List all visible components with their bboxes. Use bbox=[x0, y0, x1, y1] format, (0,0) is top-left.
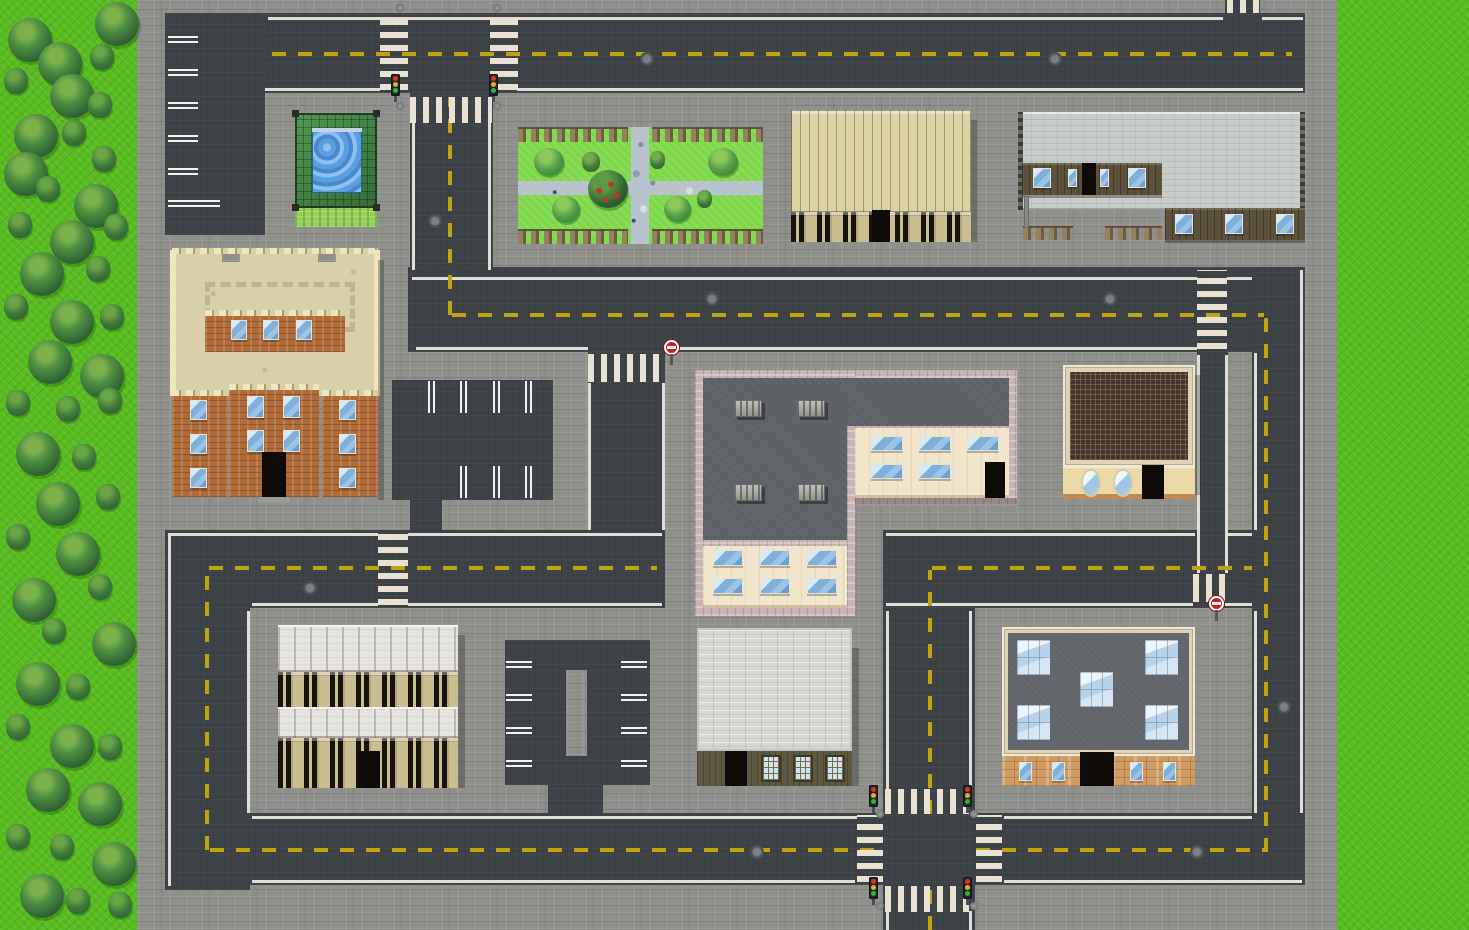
tree bbox=[6, 524, 30, 550]
signal-post bbox=[970, 902, 978, 910]
road-edge bbox=[662, 383, 665, 530]
window bbox=[339, 400, 356, 420]
garden-path-horizontal bbox=[518, 181, 763, 195]
parking-stripe bbox=[525, 466, 532, 498]
house-door bbox=[1142, 465, 1164, 499]
tree bbox=[4, 68, 28, 94]
parking-stripe bbox=[168, 135, 198, 142]
parking-stripe bbox=[621, 727, 647, 734]
tree bbox=[95, 2, 139, 46]
manhole bbox=[1048, 52, 1062, 66]
window bbox=[1052, 762, 1065, 781]
skylight bbox=[1145, 705, 1178, 740]
lane-dash bbox=[452, 313, 1264, 317]
road-edge bbox=[588, 383, 591, 530]
parking-stripe bbox=[428, 381, 435, 413]
signal-post bbox=[970, 810, 978, 818]
road-connector-east bbox=[1197, 352, 1228, 578]
tree bbox=[92, 622, 136, 666]
crosswalk bbox=[378, 532, 408, 605]
yard-fence bbox=[1023, 226, 1073, 240]
window bbox=[760, 550, 790, 566]
garden-fence bbox=[518, 229, 628, 244]
window bbox=[760, 578, 790, 594]
grass-strip-right bbox=[1337, 0, 1469, 930]
tree bbox=[104, 214, 128, 240]
tree bbox=[16, 432, 60, 476]
pool-post bbox=[292, 204, 299, 211]
tree bbox=[78, 782, 122, 826]
tree bbox=[86, 256, 110, 282]
garden-apple-bush bbox=[588, 170, 628, 208]
town-map-viewport[interactable] bbox=[0, 0, 1469, 930]
road-edge bbox=[886, 603, 1193, 606]
parking-stripe bbox=[621, 661, 647, 668]
yard-fence bbox=[1105, 226, 1162, 240]
manhole bbox=[1103, 292, 1117, 306]
lane-dash bbox=[272, 52, 1292, 56]
traffic-light bbox=[963, 877, 972, 899]
parking-stripe bbox=[460, 466, 467, 498]
garden-fence bbox=[652, 229, 763, 244]
window bbox=[283, 430, 300, 452]
tree bbox=[88, 92, 112, 118]
tree bbox=[6, 714, 30, 740]
building-shadow bbox=[378, 260, 384, 500]
crosswalk bbox=[976, 815, 1002, 882]
lane-dash bbox=[448, 97, 452, 315]
tree bbox=[108, 892, 132, 918]
roof-trim bbox=[1018, 112, 1023, 210]
garden-fence bbox=[518, 127, 628, 142]
window bbox=[283, 396, 300, 418]
road-edge bbox=[886, 611, 889, 790]
road-edge bbox=[265, 88, 380, 91]
tree bbox=[92, 146, 116, 172]
window bbox=[339, 434, 356, 454]
parking-stripe bbox=[506, 760, 532, 767]
manhole bbox=[303, 581, 317, 595]
parking-exit-lane bbox=[548, 785, 603, 813]
road-edge bbox=[1004, 816, 1252, 819]
road-edge bbox=[1254, 611, 1257, 813]
traffic-light bbox=[391, 74, 400, 96]
depot-door bbox=[1080, 752, 1114, 786]
tree bbox=[28, 340, 72, 384]
manhole bbox=[1277, 700, 1291, 714]
tree bbox=[98, 388, 122, 414]
tree bbox=[50, 834, 74, 860]
skylight bbox=[1145, 640, 1178, 675]
road-edge bbox=[886, 533, 1195, 536]
roof-vent bbox=[797, 400, 825, 417]
tree bbox=[50, 300, 94, 344]
parking-stripe bbox=[506, 661, 532, 668]
hotel-crenel bbox=[172, 248, 378, 254]
window bbox=[296, 320, 312, 340]
parking-stripe bbox=[168, 168, 198, 175]
tree bbox=[90, 44, 114, 70]
house-roof bbox=[1070, 372, 1188, 460]
tree bbox=[98, 734, 122, 760]
crosswalk bbox=[1227, 0, 1259, 13]
window bbox=[263, 320, 279, 340]
road-edge bbox=[168, 536, 171, 886]
tree bbox=[96, 484, 120, 510]
traffic-light bbox=[869, 785, 878, 807]
tree bbox=[50, 724, 94, 768]
window bbox=[1175, 214, 1193, 234]
window bbox=[967, 436, 999, 451]
gray-warehouse-roof bbox=[1018, 112, 1305, 210]
parking-stripe bbox=[621, 694, 647, 701]
window bbox=[247, 430, 264, 452]
road-edge bbox=[1225, 603, 1252, 606]
tree bbox=[88, 574, 112, 600]
road-edge bbox=[247, 611, 250, 813]
hotel-crenel bbox=[172, 390, 228, 396]
parking-island bbox=[566, 670, 587, 756]
tree bbox=[12, 578, 56, 622]
signal-post bbox=[876, 810, 884, 818]
parking-stripe bbox=[525, 381, 532, 413]
garden-fence bbox=[652, 127, 763, 142]
tree bbox=[26, 768, 70, 812]
tree bbox=[50, 74, 94, 118]
garden-bush bbox=[582, 152, 600, 172]
manhole bbox=[1190, 845, 1204, 859]
stop-sign bbox=[664, 340, 679, 355]
window bbox=[1276, 214, 1294, 234]
pool-post bbox=[292, 110, 299, 117]
warehouse-roof bbox=[791, 110, 971, 212]
road-vertical-east bbox=[1252, 267, 1305, 885]
window bbox=[231, 320, 247, 340]
building-shadow bbox=[458, 635, 465, 788]
window bbox=[871, 464, 903, 479]
window bbox=[713, 550, 743, 566]
roof-vent bbox=[734, 484, 762, 501]
skylight bbox=[1080, 672, 1113, 707]
parking-stripe bbox=[460, 381, 467, 413]
tree bbox=[72, 444, 96, 470]
crosswalk bbox=[410, 97, 492, 123]
traffic-light bbox=[869, 877, 878, 899]
hotel-crenel bbox=[322, 390, 378, 396]
parking-stripe bbox=[168, 36, 198, 43]
traffic-light bbox=[963, 785, 972, 807]
window bbox=[795, 757, 811, 780]
road-edge bbox=[665, 347, 1197, 350]
tree bbox=[4, 294, 28, 320]
lane-dash bbox=[928, 570, 932, 814]
crosswalk bbox=[885, 886, 973, 912]
road-edge bbox=[1004, 880, 1302, 883]
window bbox=[190, 468, 207, 488]
road-edge bbox=[268, 17, 1223, 20]
road-edge bbox=[168, 533, 378, 536]
road-edge bbox=[1262, 17, 1303, 20]
crosswalk bbox=[885, 789, 973, 814]
gray-warehouse-door bbox=[1082, 163, 1096, 195]
window bbox=[763, 757, 779, 780]
lane-dash bbox=[932, 566, 1252, 570]
apartments-door bbox=[359, 751, 380, 788]
road-edge bbox=[886, 911, 889, 930]
window bbox=[1128, 168, 1146, 188]
roof-vent bbox=[797, 484, 825, 501]
apartments-facade-upper bbox=[278, 672, 458, 707]
road-edge bbox=[1227, 533, 1252, 536]
skylight bbox=[1017, 705, 1050, 740]
oval-window bbox=[1115, 471, 1131, 495]
crosswalk bbox=[857, 815, 883, 882]
parking-stripe bbox=[168, 102, 198, 109]
road-edge bbox=[1227, 277, 1252, 280]
window bbox=[1100, 169, 1109, 187]
traffic-light bbox=[489, 74, 498, 96]
office-roof bbox=[703, 378, 847, 540]
building-shadow bbox=[1195, 375, 1201, 495]
road-edge bbox=[969, 611, 972, 790]
tree bbox=[100, 304, 124, 330]
signal-post bbox=[876, 902, 884, 910]
road-edge bbox=[408, 603, 662, 606]
workshop-door bbox=[725, 751, 747, 786]
oval-window bbox=[1083, 471, 1099, 495]
building-shadow bbox=[855, 498, 1017, 506]
pool-hedge bbox=[295, 208, 377, 227]
parking-stripe bbox=[168, 200, 220, 207]
lane-dash bbox=[210, 848, 882, 852]
window bbox=[1130, 762, 1143, 781]
parking-exit-lane bbox=[410, 500, 442, 533]
road-edge bbox=[1225, 355, 1228, 573]
window bbox=[713, 578, 743, 594]
window bbox=[827, 757, 843, 780]
tree bbox=[16, 662, 60, 706]
road-edge bbox=[252, 816, 857, 819]
road-edge bbox=[408, 533, 662, 536]
lane-dash bbox=[209, 566, 657, 570]
pool-post bbox=[373, 204, 380, 211]
garden-tree bbox=[664, 196, 691, 222]
road-edge bbox=[488, 122, 491, 270]
signal-post bbox=[396, 4, 404, 12]
office-door bbox=[985, 462, 1005, 498]
road-edge bbox=[517, 88, 1303, 91]
road-edge bbox=[412, 122, 415, 270]
warehouse-door bbox=[872, 210, 890, 242]
roof-trim bbox=[1300, 112, 1305, 210]
tree bbox=[36, 176, 60, 202]
tree bbox=[42, 618, 66, 644]
hotel-crenel bbox=[170, 250, 176, 396]
tree bbox=[20, 874, 64, 918]
building-shadow bbox=[852, 648, 859, 786]
tree bbox=[66, 888, 90, 914]
hotel-crenel bbox=[205, 310, 345, 316]
window bbox=[807, 578, 837, 594]
road-edge bbox=[252, 603, 378, 606]
tree bbox=[56, 396, 80, 422]
lane-dash bbox=[1264, 317, 1268, 852]
tree bbox=[62, 120, 86, 146]
manhole bbox=[705, 292, 719, 306]
roof-vent bbox=[734, 400, 762, 417]
manhole bbox=[640, 52, 654, 66]
window bbox=[339, 468, 356, 488]
window bbox=[190, 434, 207, 454]
pool-post bbox=[373, 110, 380, 117]
lane-dash bbox=[205, 568, 209, 850]
garden-bush bbox=[697, 190, 712, 208]
skylight bbox=[1017, 640, 1050, 675]
tree bbox=[20, 252, 64, 296]
window bbox=[807, 550, 837, 566]
road-edge bbox=[412, 277, 1197, 280]
tree bbox=[6, 824, 30, 850]
window bbox=[1068, 169, 1077, 187]
window bbox=[1019, 762, 1032, 781]
lane-dash bbox=[976, 848, 1266, 852]
road-edge bbox=[416, 347, 588, 350]
road-edge bbox=[1300, 270, 1303, 813]
window bbox=[919, 436, 951, 451]
window bbox=[919, 464, 951, 479]
garden-tree bbox=[552, 196, 580, 223]
window bbox=[1033, 168, 1051, 188]
garden-tree bbox=[534, 148, 564, 176]
window bbox=[871, 436, 903, 451]
parking-stripe bbox=[506, 694, 532, 701]
apartments-roof-upper bbox=[278, 625, 458, 672]
workshop-roof bbox=[697, 628, 852, 751]
drain-pipe bbox=[1024, 196, 1029, 228]
signal-post bbox=[396, 102, 404, 110]
crosswalk bbox=[1197, 270, 1227, 349]
road-edge bbox=[252, 880, 855, 883]
road-edge bbox=[969, 911, 972, 930]
hotel-door bbox=[262, 452, 286, 497]
pool-water bbox=[312, 128, 362, 193]
garden-bush bbox=[650, 151, 665, 169]
parking-stripe bbox=[506, 727, 532, 734]
tree bbox=[14, 114, 58, 158]
manhole bbox=[428, 214, 442, 228]
manhole bbox=[750, 845, 764, 859]
parking-stripe bbox=[493, 381, 500, 413]
tree bbox=[56, 532, 100, 576]
parking-stripe bbox=[493, 466, 500, 498]
crosswalk bbox=[588, 354, 663, 382]
parking-stripe bbox=[168, 69, 198, 76]
stop-sign bbox=[1209, 596, 1224, 611]
tree bbox=[6, 390, 30, 416]
window bbox=[190, 400, 207, 420]
hotel-crenel bbox=[229, 384, 319, 390]
window bbox=[247, 396, 264, 418]
tree bbox=[8, 212, 32, 238]
apartments-roof-lower bbox=[278, 707, 458, 738]
window bbox=[1225, 214, 1243, 234]
tree bbox=[36, 482, 80, 526]
garden-tree bbox=[708, 148, 738, 176]
road-edge bbox=[1254, 353, 1257, 530]
hotel-doorstep bbox=[258, 497, 290, 503]
signal-post bbox=[493, 102, 501, 110]
signal-post bbox=[493, 4, 501, 12]
building-shadow bbox=[971, 120, 977, 242]
tree bbox=[66, 674, 90, 700]
tree bbox=[92, 842, 136, 886]
window bbox=[1163, 762, 1176, 781]
parking-stripe bbox=[621, 760, 647, 767]
